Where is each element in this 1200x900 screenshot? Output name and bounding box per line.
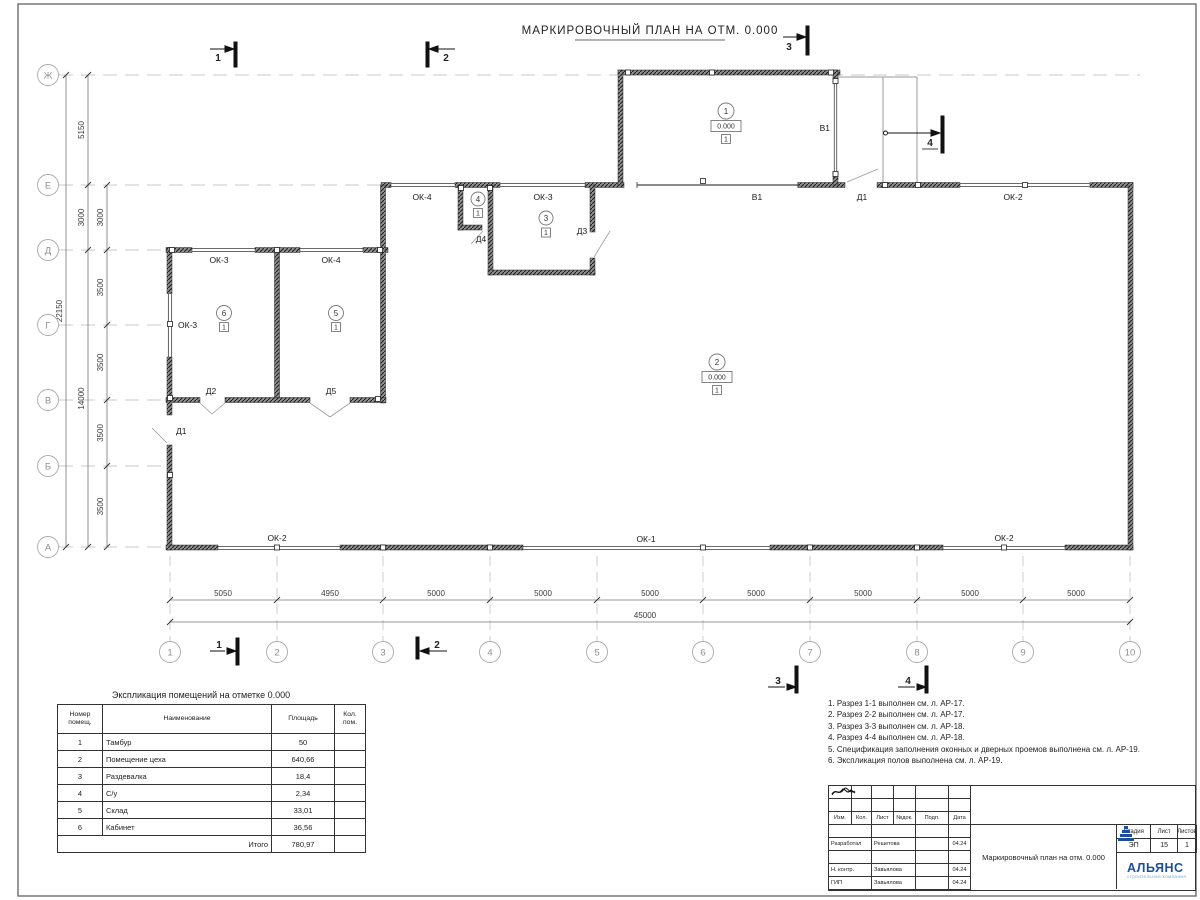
row1-num: 1 <box>58 734 103 751</box>
section-4-right: 4 <box>927 138 933 149</box>
schedule-total-label: Итого <box>58 836 272 853</box>
dim-4-5: 5000 <box>534 589 552 598</box>
axis-col-6: 6 <box>700 648 705 659</box>
row4-area: 2,34 <box>272 785 335 802</box>
row5-num: 5 <box>58 802 103 819</box>
row3-num: 3 <box>58 768 103 785</box>
dim-d-g: 3500 <box>96 278 105 296</box>
signature-gip <box>916 877 949 890</box>
label-d5: Д5 <box>326 386 337 396</box>
schedule-header-num: Номер помещ. <box>58 705 103 734</box>
walls <box>166 70 1133 550</box>
dim-3-4: 5000 <box>427 589 445 598</box>
room-1-number: 1 <box>724 107 729 116</box>
room-2-number: 2 <box>715 358 720 367</box>
tb-header-ndok: №док. <box>894 812 916 825</box>
room-schedule: Экспликация помещений на отметке 0.000 Н… <box>57 690 345 853</box>
room-2-elevation: 0.000 <box>708 375 726 382</box>
axis-bubbles-bottom <box>160 642 1141 663</box>
dim-7-8: 5000 <box>854 589 872 598</box>
row2-name: Помещение цеха <box>103 751 272 768</box>
tb-name-gip: Завьялова <box>872 877 916 890</box>
tb-stage-block: Стадия Лист Листов ЭП 15 1 АЛЬЯНС строит… <box>1116 825 1197 889</box>
dim-6-7: 5000 <box>747 589 765 598</box>
room-1-elevation: 0.000 <box>717 124 735 131</box>
company-name: АЛЬЯНС <box>1127 862 1186 874</box>
title-block: Изм. Кол. Лист №док. Подп. Дата Разработ… <box>828 785 1196 891</box>
room-3-number: 3 <box>544 214 549 223</box>
room-5-number: 5 <box>334 309 339 318</box>
label-d2: Д2 <box>206 386 217 396</box>
note-6: 6. Экспликация полов выполнена см. л. АР… <box>828 755 1176 766</box>
windows <box>168 83 1090 550</box>
row5-qty <box>335 802 366 819</box>
axis-col-2: 2 <box>274 648 279 659</box>
axis-col-5: 5 <box>594 648 599 659</box>
axis-col-8: 8 <box>914 648 919 659</box>
section-4-bottom: 4 <box>905 676 911 687</box>
marker-squares <box>168 70 1028 550</box>
tb-sheets-value: 1 <box>1178 839 1197 853</box>
row5-area: 33,01 <box>272 802 335 819</box>
schedule-header-row: Номер помещ. Наименование Площадь Кол. п… <box>58 705 366 734</box>
row6-name: Кабинет <box>103 819 272 836</box>
section-1-top: 1 <box>215 53 221 64</box>
note-1: 1. Разрез 1-1 выполнен см. л. АР-17. <box>828 698 1176 709</box>
schedule-header-area: Площадь <box>272 705 335 734</box>
tb-header-list: Лист <box>872 812 894 825</box>
label-d1-row-e: Д1 <box>857 192 868 202</box>
row5-name: Склад <box>103 802 272 819</box>
tb-header-kol: Кол. <box>852 812 872 825</box>
row2-qty <box>335 751 366 768</box>
axis-row-a: А <box>45 543 52 554</box>
room-3-floor-type: 1 <box>544 230 548 237</box>
dimensions-bottom: 5050 4950 5000 5000 5000 5000 5000 5000 … <box>167 589 1133 625</box>
schedule-row: 6 Кабинет 36,56 <box>58 819 366 836</box>
label-ok4-row-d: ОК-4 <box>321 255 340 265</box>
section-3-top: 3 <box>786 42 792 53</box>
room-4-floor-type: 1 <box>476 211 480 218</box>
row1-qty <box>335 734 366 751</box>
schedule-row: 4 С/у 2,34 <box>58 785 366 802</box>
tb-role-ncontrol: Н. контр. <box>829 864 872 877</box>
row1-name: Тамбур <box>103 734 272 751</box>
row6-qty <box>335 819 366 836</box>
gate-opening-v1 <box>637 182 798 188</box>
schedule-row: 1 Тамбур 50 <box>58 734 366 751</box>
axis-grid <box>59 75 1140 641</box>
company-logo: АЛЬЯНС строительная компания <box>1117 853 1197 888</box>
dim-e-d: 3000 <box>96 208 105 226</box>
axis-col-10: 10 <box>1125 648 1136 659</box>
axis-col-9: 9 <box>1020 648 1025 659</box>
label-v1-room1: В1 <box>820 123 831 133</box>
section-1-bottom: 1 <box>216 640 222 651</box>
company-subtitle: строительная компания <box>1127 874 1186 879</box>
schedule-total-value: 780,97 <box>272 836 335 853</box>
schedule-row: 2 Помещение цеха 640,66 <box>58 751 366 768</box>
label-ok2-bottom-left: ОК-2 <box>267 533 286 543</box>
notes-list: 1. Разрез 1-1 выполнен см. л. АР-17. 2. … <box>828 698 1176 766</box>
room-2-floor-type: 1 <box>715 388 719 395</box>
room-schedule-table: Номер помещ. Наименование Площадь Кол. п… <box>57 704 366 853</box>
row3-name: Раздевалка <box>103 768 272 785</box>
room-5-floor-type: 1 <box>334 325 338 332</box>
section-2-bottom: 2 <box>434 640 440 651</box>
tb-date-ncontrol: 04.24 <box>949 864 971 877</box>
axis-labels-left: Ж Е Д Г В Б А <box>44 71 53 554</box>
section-2-top: 2 <box>443 53 449 64</box>
dimensions-left: 3000 3500 3500 3500 3500 5150 3000 14000… <box>55 72 110 550</box>
row3-area: 18,4 <box>272 768 335 785</box>
note-3: 3. Разрез 3-3 выполнен см. л. АР-18. <box>828 721 1176 732</box>
tb-doc-title: Маркировочный план на отм. 0.000 <box>970 825 1116 889</box>
tb-sheets-label: Листов <box>1178 825 1197 839</box>
note-2: 2. Разрез 2-2 выполнен см. л. АР-17. <box>828 709 1176 720</box>
axis-col-4: 4 <box>487 648 492 659</box>
axis-row-b: Б <box>45 462 51 473</box>
dim-v-b: 3500 <box>96 424 105 442</box>
schedule-row: 5 Склад 33,01 <box>58 802 366 819</box>
axis-col-7: 7 <box>807 648 812 659</box>
plan-title: МАРКИРОВОЧНЫЙ ПЛАН НА ОТМ. 0.000 <box>522 24 779 40</box>
axis-row-zh: Ж <box>44 71 53 82</box>
label-ok2-bottom-right: ОК-2 <box>994 533 1013 543</box>
tb-empty-cell <box>970 786 1196 825</box>
note-4: 4. Разрез 4-4 выполнен см. л. АР-18. <box>828 732 1176 743</box>
dim-2-3: 4950 <box>321 589 339 598</box>
row2-area: 640,66 <box>272 751 335 768</box>
label-v1-row-e: В1 <box>752 192 763 202</box>
label-ok4-row-e: ОК-4 <box>412 192 431 202</box>
tb-date-gip: 04.24 <box>949 877 971 890</box>
row4-num: 4 <box>58 785 103 802</box>
note-5: 5. Спецификация заполнения оконных и две… <box>828 744 1176 755</box>
axis-labels-bottom: 1 2 3 4 5 6 7 8 9 10 <box>167 648 1135 659</box>
axis-row-d: Д <box>45 246 52 257</box>
label-ok1-bottom: ОК-1 <box>636 534 655 544</box>
schedule-total-qty <box>335 836 366 853</box>
canopy <box>838 77 917 183</box>
axis-col-3: 3 <box>380 648 385 659</box>
dim-1-2: 5050 <box>214 589 232 598</box>
page-title: МАРКИРОВОЧНЫЙ ПЛАН НА ОТМ. 0.000 <box>522 24 779 37</box>
row4-qty <box>335 785 366 802</box>
schedule-total-row: Итого 780,97 <box>58 836 366 853</box>
row6-area: 36,56 <box>272 819 335 836</box>
signature-ncontrol <box>916 864 949 877</box>
dim-5-6: 5000 <box>641 589 659 598</box>
tb-name-developer: Решетова <box>872 838 916 851</box>
label-d4: Д4 <box>476 234 487 244</box>
dim-8-9: 5000 <box>961 589 979 598</box>
dim-g-v: 3500 <box>96 353 105 371</box>
label-ok3-row-e: ОК-3 <box>533 192 552 202</box>
room-1-floor-type: 1 <box>724 137 728 144</box>
section-3-bottom: 3 <box>775 676 781 687</box>
tb-name-ncontrol: Завьялова <box>872 864 916 877</box>
tb-sheet-label: Лист <box>1151 825 1178 839</box>
tb-role-gip: ГИП <box>829 877 872 890</box>
tb-header-podp: Подп. <box>916 812 949 825</box>
tb-header-data: Дата <box>949 812 971 825</box>
row6-num: 6 <box>58 819 103 836</box>
schedule-header-qty: Кол. пом. <box>335 705 366 734</box>
axis-row-v: В <box>45 396 51 407</box>
axis-row-e: Е <box>45 181 51 192</box>
label-d1-left-wall: Д1 <box>176 426 187 436</box>
label-ok3-row-d: ОК-3 <box>209 255 228 265</box>
room-schedule-title: Экспликация помещений на отметке 0.000 <box>57 690 345 700</box>
dim-9-10: 5000 <box>1067 589 1085 598</box>
room-6-number: 6 <box>222 309 227 318</box>
tb-role-developer: Разработал <box>829 838 872 851</box>
tb-header-izm: Изм. <box>829 812 852 825</box>
row1-area: 50 <box>272 734 335 751</box>
axis-row-g: Г <box>45 321 50 332</box>
row2-num: 2 <box>58 751 103 768</box>
label-d3: Д3 <box>577 226 588 236</box>
schedule-header-name: Наименование <box>103 705 272 734</box>
drawing-sheet: { "title": "МАРКИРОВОЧНЫЙ ПЛАН НА ОТМ. 0… <box>0 0 1200 900</box>
dim-zh-e: 5150 <box>77 121 86 139</box>
dim-e-d-mid: 3000 <box>77 208 86 226</box>
label-ok2-row-e: ОК-2 <box>1003 192 1022 202</box>
row3-qty <box>335 768 366 785</box>
tb-sheet-value: 15 <box>1151 839 1178 853</box>
label-ok3-left-wall: ОК-3 <box>178 320 197 330</box>
dim-d-a: 14000 <box>77 387 86 410</box>
room-6-floor-type: 1 <box>222 325 226 332</box>
dim-bottom-total: 45000 <box>634 611 657 620</box>
schedule-row: 3 Раздевалка 18,4 <box>58 768 366 785</box>
tb-date-developer: 04.24 <box>949 838 971 851</box>
dim-b-a: 3500 <box>96 497 105 515</box>
axis-col-1: 1 <box>167 648 172 659</box>
row4-name: С/у <box>103 785 272 802</box>
signature-developer <box>916 838 949 851</box>
room-4-number: 4 <box>476 195 481 204</box>
